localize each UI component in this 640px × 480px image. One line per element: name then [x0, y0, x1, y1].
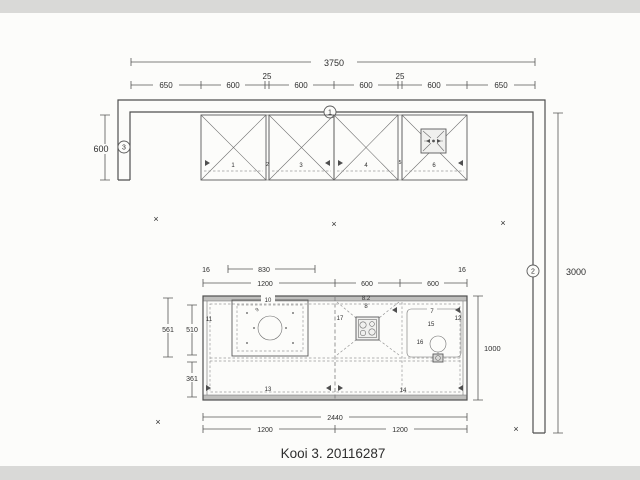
cabinet-number: 5 [399, 160, 402, 166]
wall-markers: 1 3 2 [118, 106, 539, 277]
x-mark: × [153, 214, 158, 224]
wall-outer-line [118, 100, 545, 433]
upper-cabinets: 1 2 3 4 5 [201, 115, 467, 180]
cross-brace [269, 115, 334, 180]
dim-line-1000 [473, 296, 483, 400]
item-number-mid-divider: 17 [337, 316, 344, 322]
upper-cabinet-1: 1 [201, 115, 266, 180]
item-number-base-left: 13 [265, 387, 272, 393]
door-swing-arrow [325, 160, 330, 166]
x-mark: × [331, 219, 336, 229]
dim-island-2440: 2440 [327, 415, 343, 422]
dim-overall-width: 3750 [324, 58, 344, 68]
island-bottom-dimensions: 2440 1200 1200 [203, 412, 467, 434]
cabinet-number: 1 [231, 163, 235, 169]
item-number-tap: 15 [428, 322, 435, 328]
walls [118, 100, 545, 433]
cross-brace [201, 115, 266, 180]
door-swing-arrow [338, 385, 343, 391]
left-wall-dimension: 600 [88, 115, 114, 180]
upper-cabinet-3: 3 [269, 115, 334, 180]
item-number-bowl: 16 [417, 340, 424, 346]
dim-segment-600-2: 600 [294, 81, 308, 90]
dim-island-600-b: 600 [427, 281, 439, 288]
upper-filler-5: 5 [398, 115, 402, 180]
upper-cabinet-4: 4 [334, 115, 398, 180]
dim-segment-600-3: 600 [359, 81, 373, 90]
cabinet-number: 3 [299, 163, 303, 169]
dim-segment-600-1: 600 [226, 81, 240, 90]
cross-brace [334, 115, 398, 180]
door-swing-arrow [326, 385, 331, 391]
dim-island-510: 510 [186, 327, 198, 334]
dim-segment-650-right: 650 [494, 81, 508, 90]
island-left-dimensions: 561 510 361 [158, 298, 202, 397]
marker-right-wall: 2 [531, 269, 535, 276]
cabinet-number: 4 [364, 163, 368, 169]
door-swing-arrow [458, 160, 463, 166]
dim-island-1200-right: 1200 [392, 427, 408, 434]
door-swing-arrow [392, 307, 397, 313]
hob-icon [356, 317, 379, 340]
top-letterbox-bar [0, 0, 640, 13]
item-number-hob-note: 8.2 [362, 296, 371, 302]
item-number-base-right: 14 [400, 388, 407, 394]
floor-plan-drawing: 3750 25 25 650 600 600 600 600 650 600 3… [0, 0, 640, 480]
dim-segment-600-4: 600 [427, 81, 441, 90]
cabinet-number: 6 [432, 163, 436, 169]
dim-island-361: 361 [186, 376, 198, 383]
dim-island-600-a: 600 [361, 281, 373, 288]
sink-surround [407, 309, 461, 357]
dim-line-segments [131, 81, 535, 89]
dim-line-island-bottom-row [203, 425, 467, 433]
island-hob-section: 8.2 8 17 [337, 296, 399, 355]
drawing-title: Kooi 3. 20116287 [281, 446, 386, 461]
wall-inner-line [130, 112, 533, 433]
dim-island-561: 561 [162, 327, 174, 334]
dim-gap-right: 25 [396, 72, 405, 81]
x-mark: × [513, 424, 518, 434]
dim-gap-left: 25 [263, 72, 272, 81]
round-bowl-icon [258, 316, 282, 340]
dim-island-edge-left: 16 [202, 267, 210, 274]
item-number-sink-note: 9 [255, 307, 261, 314]
dim-island-1000: 1000 [484, 344, 501, 353]
item-number-right-divider: 12 [455, 316, 462, 322]
floor-x-marks: × × × × × [153, 214, 518, 434]
dim-island-1200-top: 1200 [257, 281, 273, 288]
x-mark: × [155, 417, 160, 427]
dim-island-1200-left: 1200 [257, 427, 273, 434]
dim-island-edge-right: 16 [458, 267, 466, 274]
island-top-dimensions: 16 830 16 1200 600 600 [202, 264, 467, 288]
marker-left-wall: 3 [122, 145, 126, 152]
top-dimensions: 3750 25 25 650 600 600 600 600 650 [131, 58, 535, 90]
dim-sink-unit-width: 830 [258, 267, 270, 274]
item-number-hob: 8 [364, 304, 368, 310]
dim-segment-650-left: 650 [159, 81, 173, 90]
door-swing-arrow [458, 385, 463, 391]
door-swing-arrow [455, 307, 460, 313]
extractor-hood-icon [421, 129, 446, 153]
x-mark: × [500, 218, 505, 228]
door-swing-arrow [205, 160, 210, 166]
island-right-dimension: 1000 [473, 296, 501, 400]
dim-right-wall: 3000 [566, 267, 586, 277]
kitchen-island: 10 9 11 8.2 8 17 7 15 16 [203, 295, 467, 400]
door-swing-arrow [338, 160, 343, 166]
dim-line-right-wall [553, 113, 563, 433]
dim-left-wall: 600 [93, 144, 108, 154]
right-wall-dimension: 3000 [553, 113, 586, 433]
island-sink-section: 7 15 16 12 [407, 306, 462, 362]
upper-cabinet-6: 6 [402, 115, 467, 180]
bottom-letterbox-bar [0, 466, 640, 480]
island-inner-edges [203, 301, 467, 395]
item-number-left-edge: 11 [206, 317, 213, 323]
item-number-sink-unit: 10 [265, 298, 272, 304]
tap-icon [433, 354, 443, 362]
